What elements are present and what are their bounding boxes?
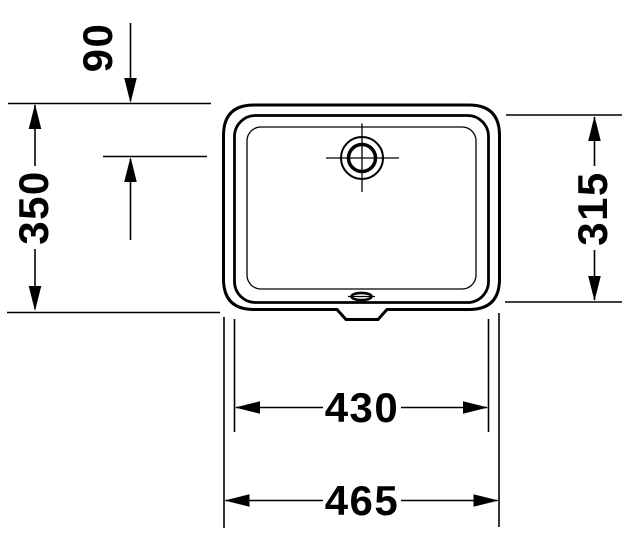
dimension-label-350: 350	[10, 170, 57, 245]
dimension-label-90: 90	[74, 23, 121, 73]
basin-dimension-drawing: 90 350 315 430	[0, 0, 626, 534]
arrowhead-up	[29, 104, 42, 129]
technical-drawing-canvas: 90 350 315 430	[0, 0, 626, 534]
arrowhead-left	[235, 401, 260, 414]
dimension-label-430: 430	[325, 384, 400, 431]
arrowhead-up	[124, 157, 137, 182]
dimension-label-465: 465	[325, 477, 400, 524]
overflow-hole	[326, 124, 399, 193]
arrowhead-right	[463, 401, 488, 414]
arrowhead-up	[588, 116, 601, 141]
arrowhead-down	[29, 286, 42, 311]
dimension-outer-depth: 350	[7, 104, 220, 313]
dimension-bowl-width: 430	[235, 319, 489, 432]
drain-mark	[348, 293, 375, 300]
dimension-bowl-depth: 315	[505, 115, 622, 302]
dimension-label-315: 315	[569, 171, 616, 246]
arrowhead-left	[225, 494, 250, 507]
arrowhead-down	[588, 276, 601, 301]
arrowhead-down	[124, 78, 137, 103]
arrowhead-right	[474, 494, 499, 507]
